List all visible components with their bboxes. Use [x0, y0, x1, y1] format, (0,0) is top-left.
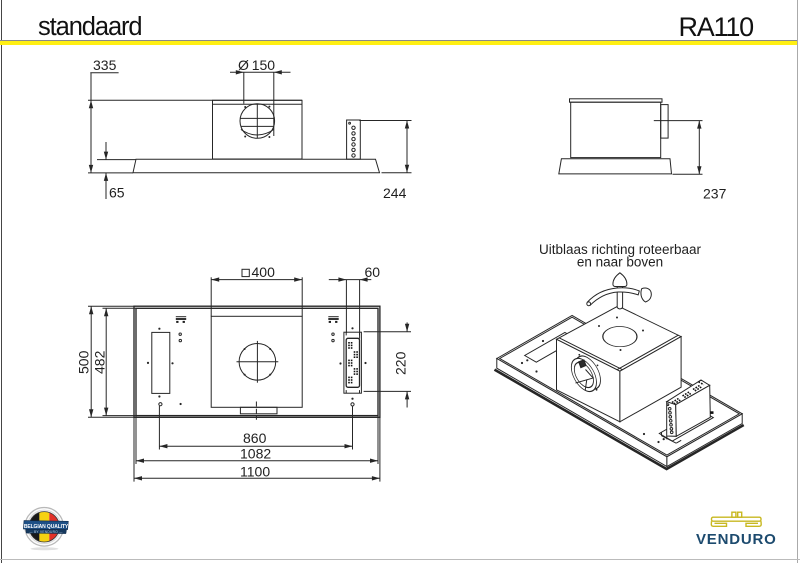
svg-text:en naar boven: en naar boven [577, 255, 663, 270]
svg-text:— BY VENDURO —: — BY VENDURO — [29, 530, 63, 534]
svg-text:BELGIAN QUALITY: BELGIAN QUALITY [24, 524, 69, 530]
svg-text:237: 237 [703, 186, 727, 202]
svg-text:500: 500 [76, 350, 92, 374]
svg-text:335: 335 [93, 57, 117, 73]
svg-text:1082: 1082 [240, 446, 271, 462]
svg-text:220: 220 [393, 351, 409, 375]
svg-text:VENDURO: VENDURO [696, 531, 777, 548]
svg-text:Ø 150: Ø 150 [238, 57, 275, 73]
svg-text:244: 244 [383, 185, 407, 201]
svg-text:60: 60 [365, 264, 381, 280]
svg-text:482: 482 [92, 350, 108, 374]
svg-text:860: 860 [243, 430, 267, 446]
svg-text:1100: 1100 [240, 463, 270, 479]
svg-text:400: 400 [252, 264, 276, 280]
svg-text:65: 65 [109, 185, 125, 201]
